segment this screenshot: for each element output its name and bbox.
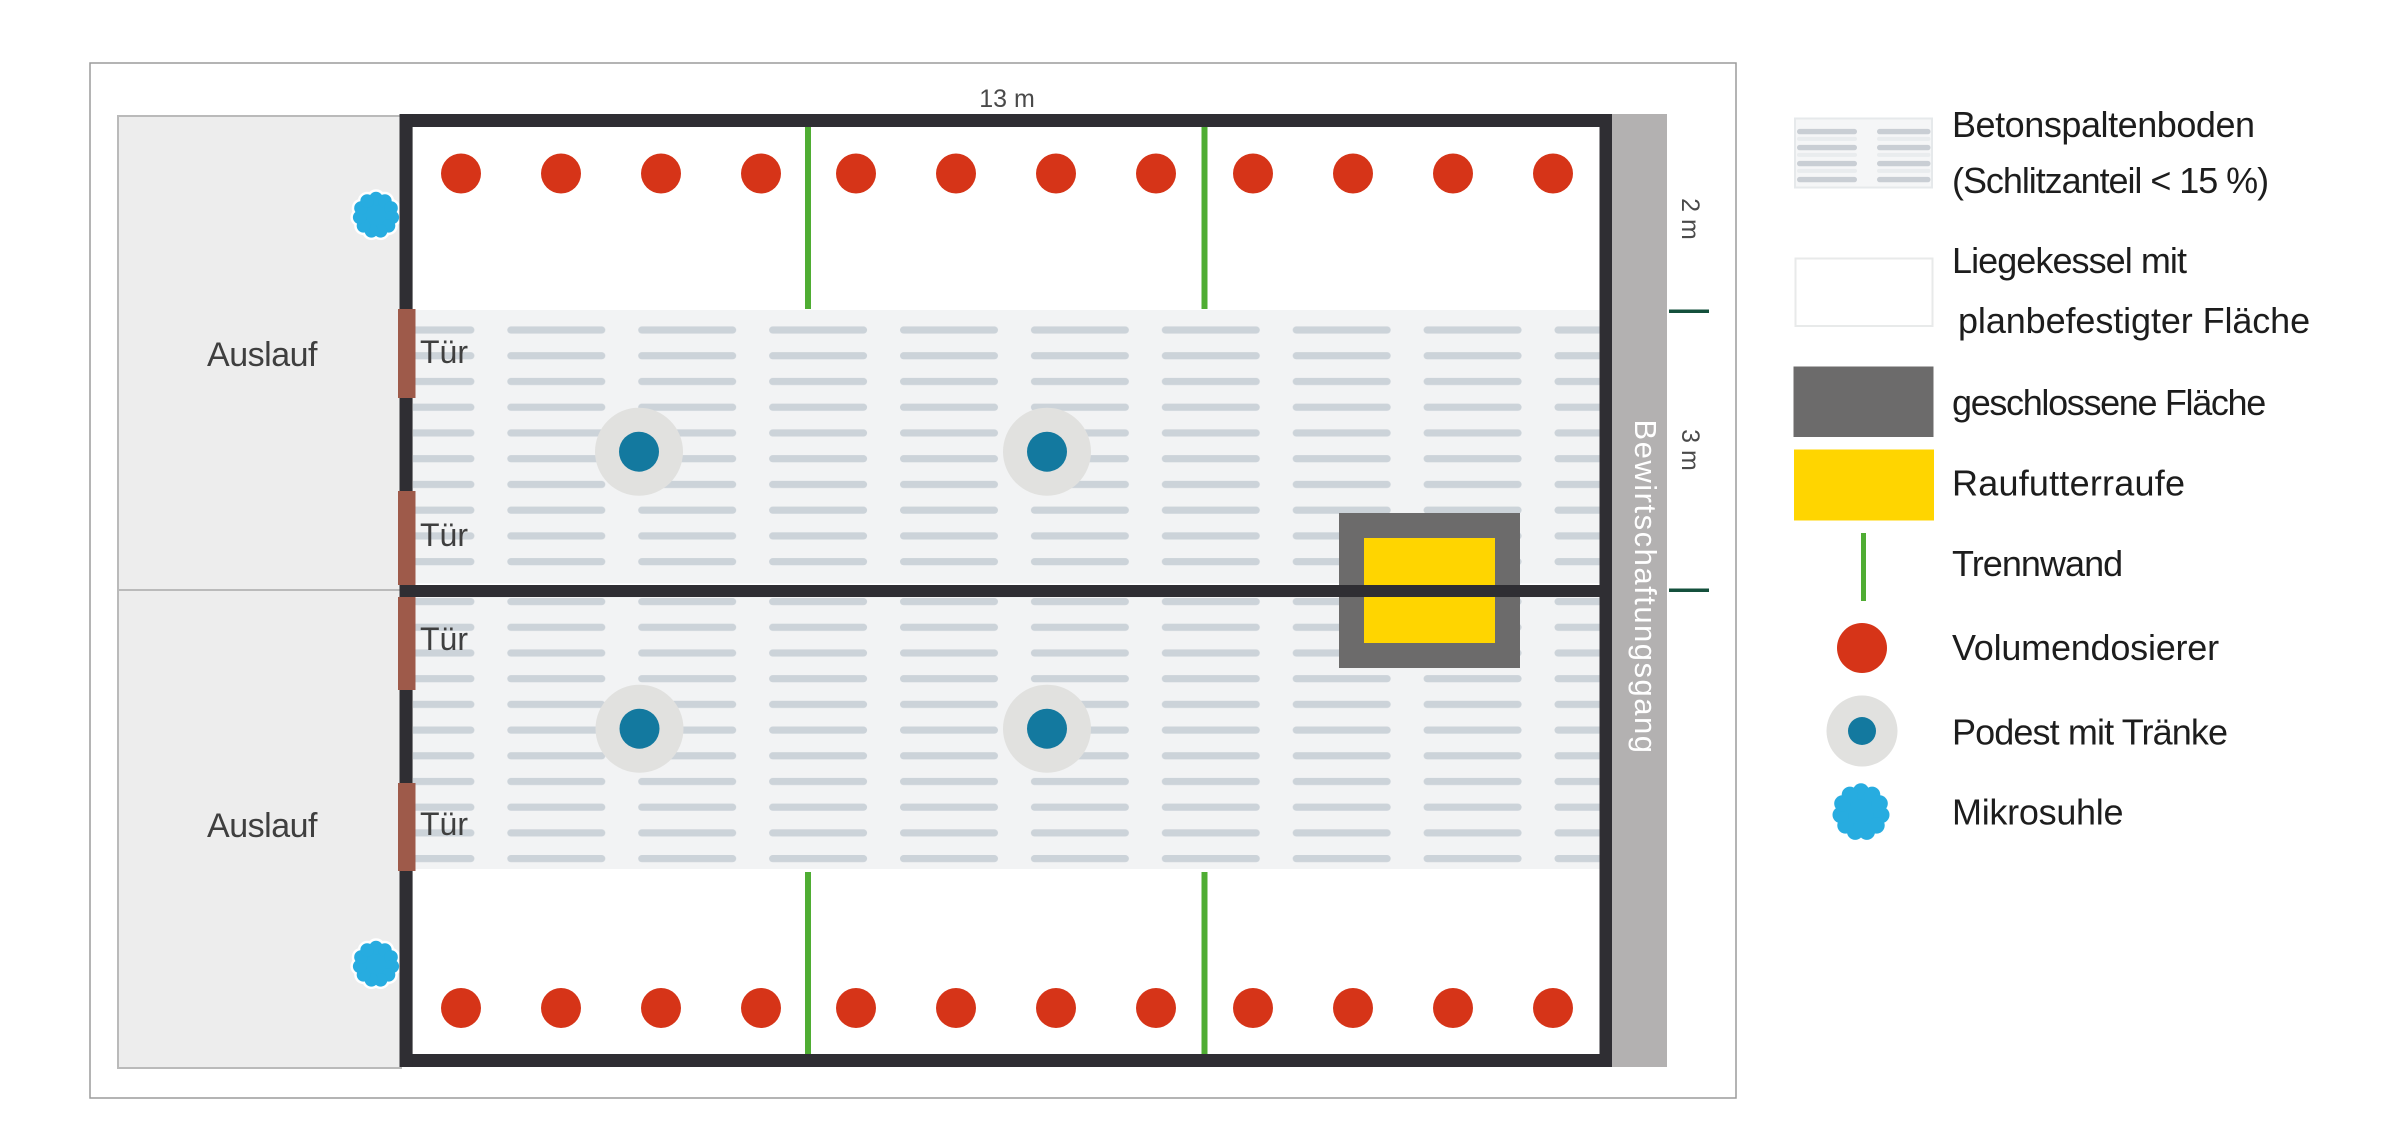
svg-text:Bewirtschaftungsgang: Bewirtschaftungsgang [1628, 419, 1663, 754]
svg-text:Mikrosuhle: Mikrosuhle [1952, 792, 2123, 833]
svg-text:Auslauf: Auslauf [207, 807, 318, 845]
svg-text:Tür: Tür [420, 806, 468, 842]
svg-text:Trennwand: Trennwand [1952, 543, 2122, 584]
svg-text:(Schlitzanteil < 15 %): (Schlitzanteil < 15 %) [1952, 160, 2268, 201]
svg-text:2 m: 2 m [1676, 198, 1704, 240]
svg-text:Tür: Tür [420, 517, 468, 553]
svg-text:Betonspaltenboden: Betonspaltenboden [1952, 104, 2255, 145]
svg-text:Liegekessel mit: Liegekessel mit [1952, 240, 2187, 281]
svg-text:geschlossene Fläche: geschlossene Fläche [1952, 382, 2265, 423]
svg-text:Tür: Tür [420, 334, 468, 370]
svg-text:Raufutterraufe: Raufutterraufe [1952, 463, 2185, 504]
svg-text:3 m: 3 m [1676, 429, 1704, 471]
svg-text:planbefestigter Fläche: planbefestigter Fläche [1958, 300, 2310, 341]
svg-text:13 m: 13 m [979, 85, 1035, 113]
svg-text:Tür: Tür [420, 621, 468, 657]
svg-text:Podest mit Tränke: Podest mit Tränke [1952, 712, 2227, 753]
svg-text:Volumendosierer: Volumendosierer [1952, 627, 2219, 668]
svg-text:Auslauf: Auslauf [207, 336, 318, 374]
